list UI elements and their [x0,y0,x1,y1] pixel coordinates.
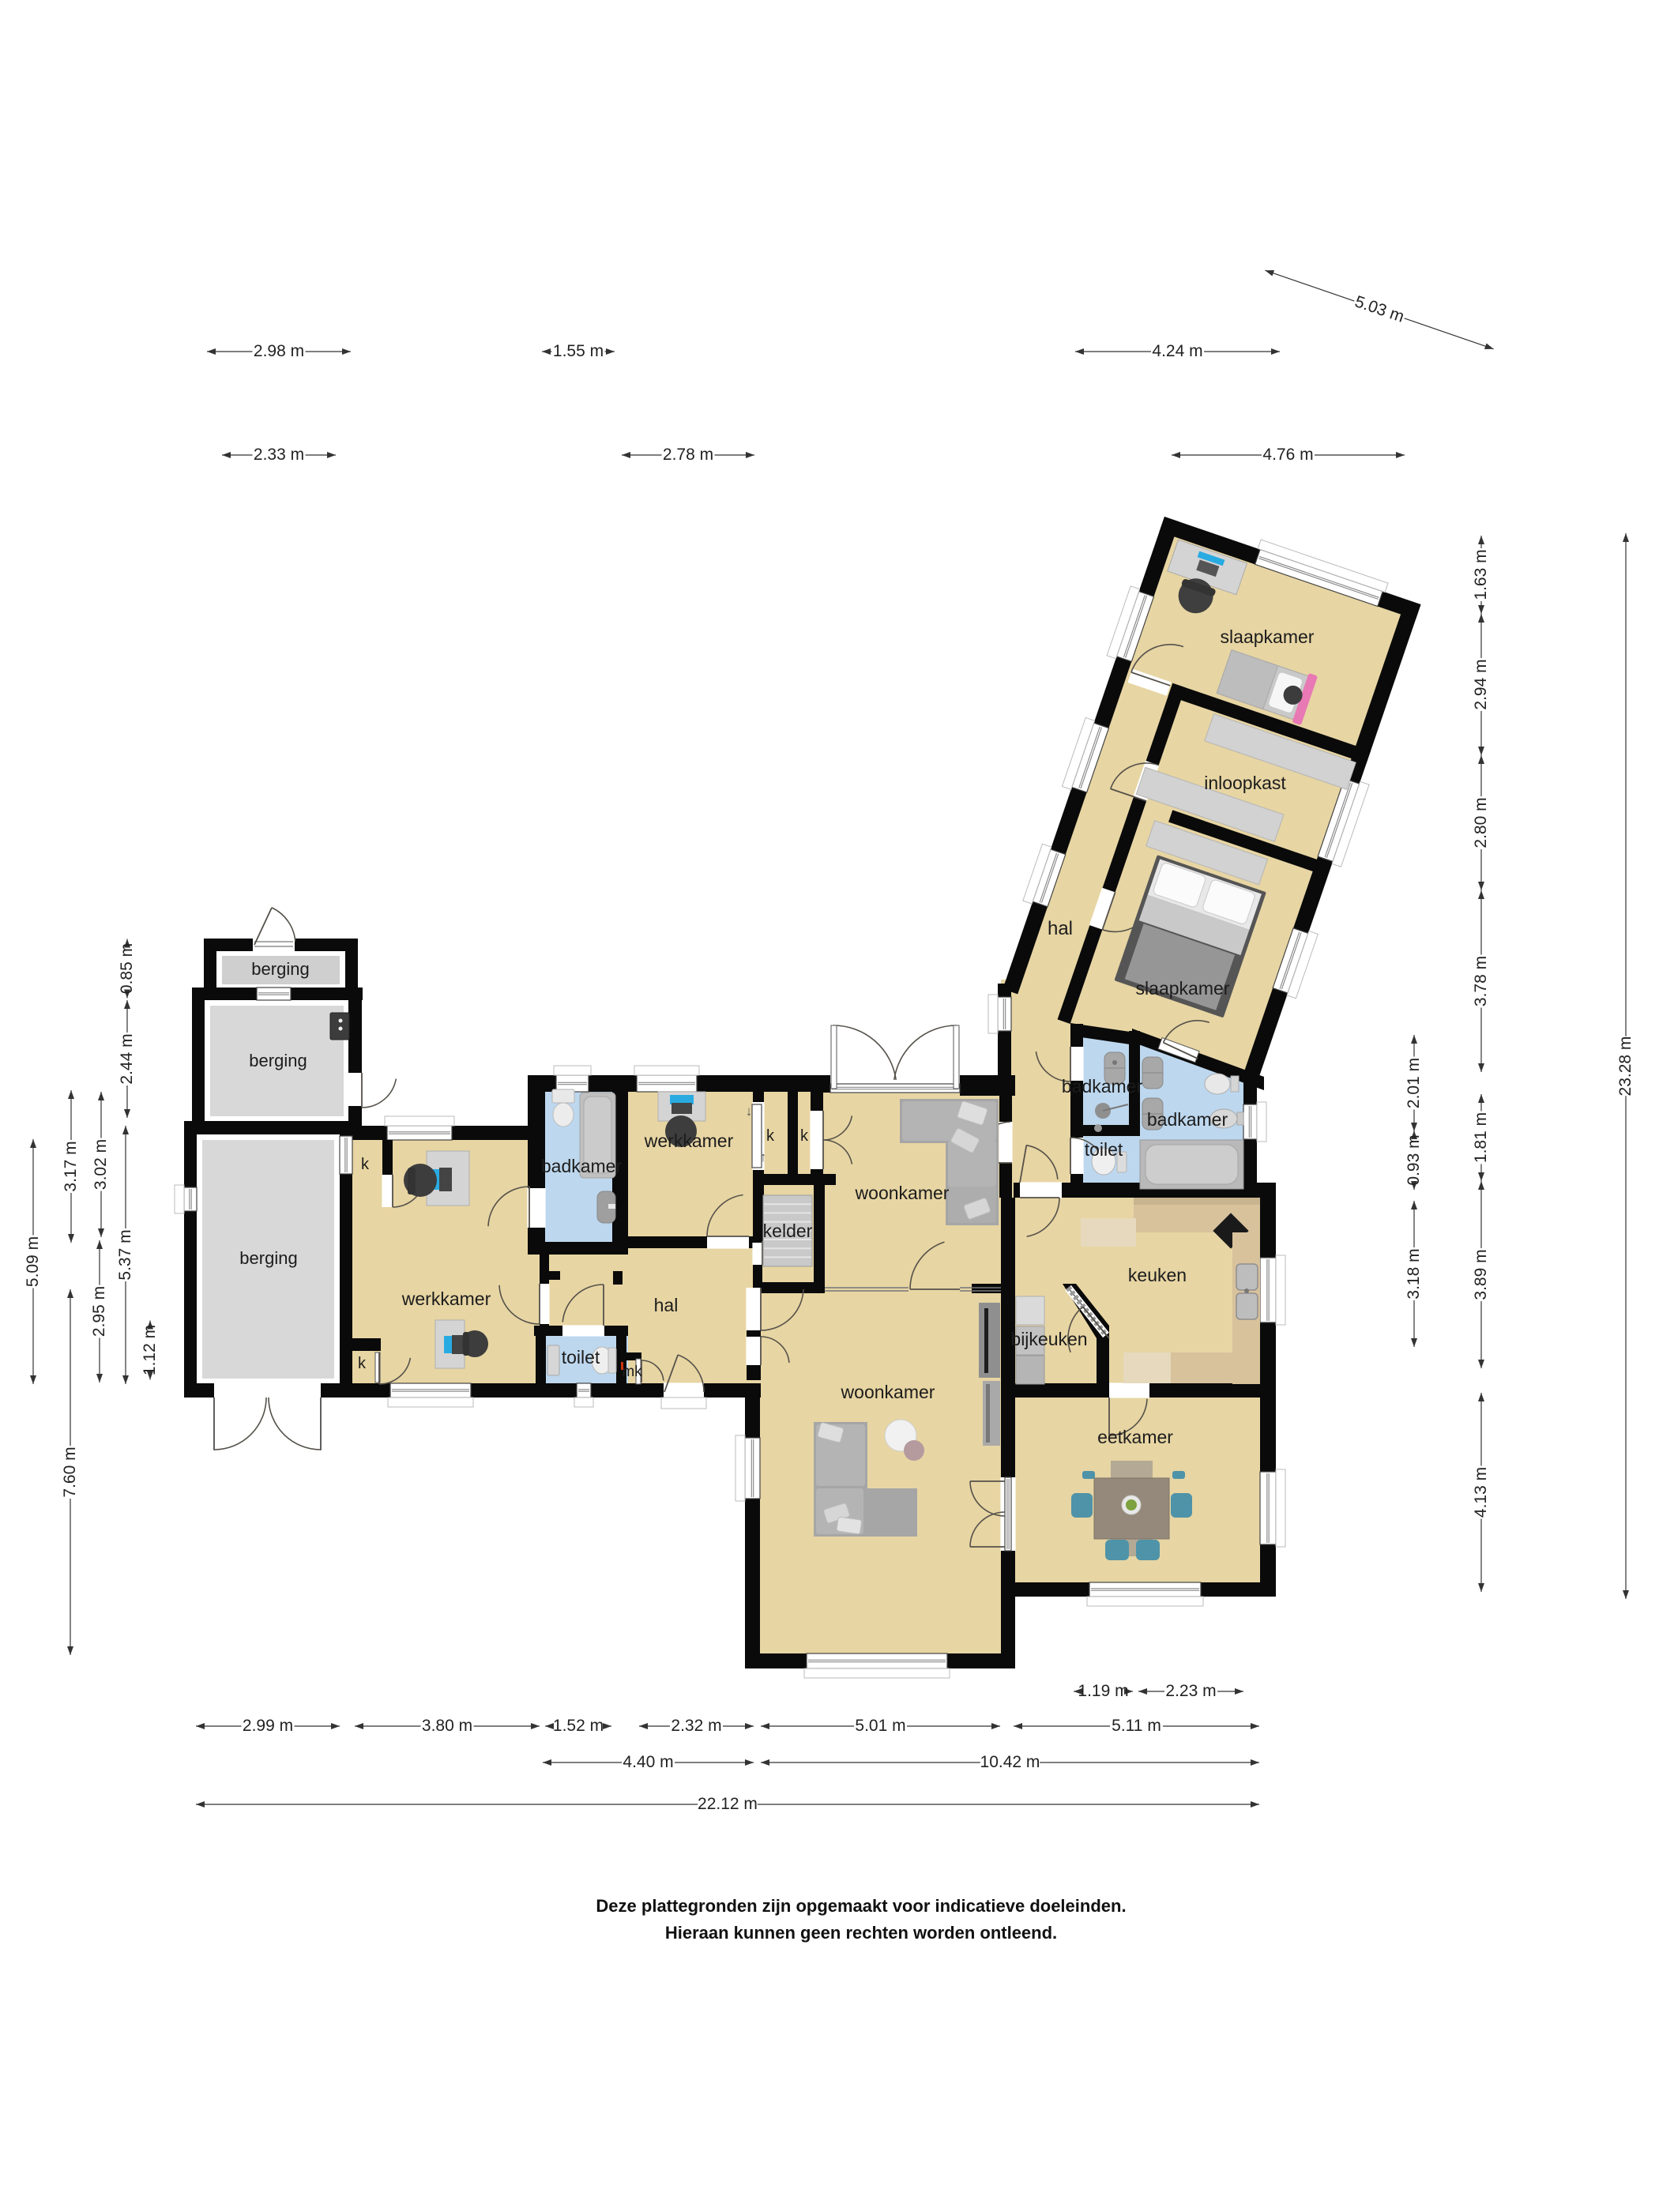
svg-text:4.40 m: 4.40 m [623,1753,673,1771]
svg-text:2.80 m: 2.80 m [1472,797,1490,848]
svg-text:keuken: keuken [1128,1265,1187,1285]
svg-text:5.37 m: 5.37 m [116,1229,134,1280]
svg-text:↑: ↑ [760,1149,767,1164]
svg-text:2.23 m: 2.23 m [1165,1682,1216,1700]
svg-text:0.93 m: 0.93 m [1405,1134,1423,1185]
svg-text:toilet: toilet [1085,1139,1123,1160]
svg-text:woonkamer: woonkamer [841,1382,935,1402]
svg-text:berging: berging [239,1248,297,1268]
svg-text:1.52 m: 1.52 m [553,1717,604,1735]
svg-text:2.95 m: 2.95 m [90,1286,108,1337]
svg-text:2.44 m: 2.44 m [118,1033,136,1084]
svg-text:5.01 m: 5.01 m [855,1717,905,1735]
svg-text:1.81 m: 1.81 m [1472,1112,1490,1163]
svg-text:hal: hal [654,1295,679,1315]
svg-text:22.12 m: 22.12 m [698,1795,758,1813]
svg-text:inloopkast: inloopkast [1204,773,1286,793]
svg-text:bijkeuken: bijkeuken [1010,1329,1087,1349]
svg-text:k: k [361,1156,370,1173]
svg-text:2.01 m: 2.01 m [1405,1058,1423,1108]
svg-text:Hieraan kunnen geen rechten wo: Hieraan kunnen geen rechten worden ontle… [665,1923,1057,1943]
svg-text:3.17 m: 3.17 m [62,1141,80,1191]
svg-text:badkamer: badkamer [1062,1076,1143,1097]
svg-text:k: k [766,1127,775,1145]
svg-text:werkkamer: werkkamer [644,1130,734,1151]
svg-text:berging: berging [251,959,309,979]
svg-text:1.63 m: 1.63 m [1472,549,1490,600]
svg-text:woonkamer: woonkamer [855,1183,950,1203]
svg-text:badkamer: badkamer [1147,1109,1228,1130]
svg-text:werkkamer: werkkamer [401,1288,491,1309]
svg-text:3.80 m: 3.80 m [422,1717,472,1735]
svg-text:badkamer: badkamer [541,1156,623,1176]
svg-text:hal: hal [1048,918,1073,939]
svg-text:k: k [358,1355,367,1372]
svg-text:↓: ↓ [746,1104,753,1119]
svg-text:2.32 m: 2.32 m [671,1717,721,1735]
svg-text:4.13 m: 4.13 m [1472,1467,1490,1518]
svg-text:3.18 m: 3.18 m [1405,1248,1423,1299]
svg-text:5.09 m: 5.09 m [24,1236,42,1287]
svg-text:1.19 m: 1.19 m [1078,1682,1128,1700]
svg-text:3.78 m: 3.78 m [1472,956,1490,1006]
svg-text:3.89 m: 3.89 m [1472,1249,1490,1300]
svg-text:2.98 m: 2.98 m [254,342,304,360]
svg-text:k: k [800,1127,809,1145]
svg-text:10.42 m: 10.42 m [980,1753,1040,1771]
svg-text:berging: berging [249,1051,307,1070]
svg-text:1.55 m: 1.55 m [553,342,604,360]
svg-text:2.33 m: 2.33 m [254,446,304,464]
svg-text:2.78 m: 2.78 m [663,446,713,464]
svg-text:7.60 m: 7.60 m [61,1446,79,1497]
svg-text:3.02 m: 3.02 m [92,1139,110,1190]
svg-text:mk: mk [622,1364,642,1380]
svg-text:slaapkamer: slaapkamer [1221,626,1315,647]
svg-text:kelder: kelder [763,1221,813,1241]
svg-text:5.11 m: 5.11 m [1112,1717,1161,1735]
svg-text:4.76 m: 4.76 m [1262,446,1313,464]
svg-text:2.94 m: 2.94 m [1472,659,1490,709]
svg-text:1.12 m: 1.12 m [141,1325,159,1375]
svg-text:2.99 m: 2.99 m [243,1717,293,1735]
svg-text:slaapkamer: slaapkamer [1136,978,1230,999]
svg-text:eetkamer: eetkamer [1097,1427,1173,1447]
svg-text:23.28 m: 23.28 m [1616,1036,1635,1097]
svg-text:0.85 m: 0.85 m [118,943,136,994]
svg-text:toilet: toilet [562,1347,600,1367]
svg-text:4.24 m: 4.24 m [1152,342,1202,360]
svg-text:Deze plattegronden zijn opgema: Deze plattegronden zijn opgemaakt voor i… [596,1896,1126,1916]
